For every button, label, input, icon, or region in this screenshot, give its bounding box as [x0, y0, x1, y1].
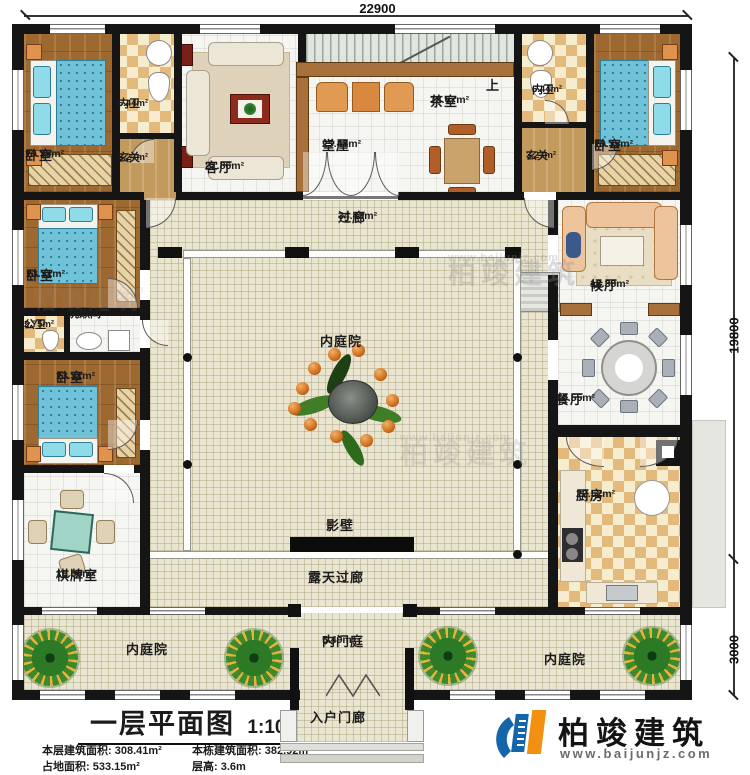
brand-logo: 柏竣建筑 www.baijunjz.com	[492, 702, 742, 770]
courtyard-strip-top	[183, 250, 521, 258]
bed	[600, 60, 650, 146]
tea-chair	[448, 124, 476, 135]
window	[12, 70, 24, 130]
waiting-post-r	[648, 303, 680, 316]
wall-toprow-d	[556, 192, 680, 200]
fruit	[304, 418, 317, 431]
window	[680, 625, 692, 680]
porch-step	[280, 743, 424, 751]
armchair	[384, 82, 414, 112]
window	[680, 70, 692, 130]
page-title: 一层平面图	[90, 709, 235, 739]
chess-chair	[60, 490, 84, 509]
kitchen-counter-left	[560, 470, 586, 582]
wall-bath-tl-btm	[120, 133, 174, 139]
dim-bottom-right-value: 3000	[727, 626, 742, 674]
stat-3: 占地面积: 533.15m²	[42, 758, 140, 774]
dim-right-value: 19800	[727, 308, 742, 364]
window	[12, 230, 24, 285]
coffee-table	[600, 236, 644, 266]
porch-pier-r	[407, 710, 424, 742]
wall-living-hall-top	[298, 34, 306, 62]
open-corridor-edge	[146, 551, 555, 559]
stove-burner	[566, 548, 578, 560]
brand-logo-icon	[492, 704, 554, 766]
bed	[56, 60, 106, 146]
fruit	[382, 420, 395, 433]
sofa	[586, 202, 662, 228]
porch-pier-l	[280, 710, 297, 742]
pillow	[653, 103, 671, 135]
column-stub	[285, 247, 309, 258]
window	[190, 690, 235, 700]
window	[12, 625, 24, 680]
nightstand	[662, 44, 678, 60]
sofa	[208, 42, 284, 66]
person-figure	[566, 232, 581, 258]
tree-icon	[22, 630, 78, 686]
wall-bed-tl-r	[112, 34, 120, 192]
outside-walk	[692, 420, 726, 608]
sink-icon	[527, 40, 553, 66]
column-dot	[513, 460, 522, 469]
tea-chair	[483, 146, 495, 174]
dining-table-center	[615, 354, 643, 382]
fruit	[308, 362, 321, 375]
stove-burner	[566, 533, 578, 545]
gate-stub-r	[405, 648, 414, 710]
wall-toprow-a	[24, 192, 144, 200]
tea-table	[444, 138, 480, 184]
wall-leftcol-v4	[140, 450, 150, 607]
window	[115, 690, 160, 700]
tree-icon	[420, 628, 476, 684]
window	[40, 690, 85, 700]
dining-chair	[582, 359, 595, 377]
window	[600, 24, 660, 34]
column-stub	[158, 247, 182, 258]
hall-beam	[296, 62, 514, 77]
wall-wc-divider	[64, 316, 70, 352]
window	[12, 385, 24, 440]
column-dot	[183, 353, 192, 362]
mahjong-table	[50, 510, 94, 554]
fruit	[296, 382, 309, 395]
window	[440, 607, 495, 615]
fruit	[360, 434, 373, 447]
column-dot	[513, 353, 522, 362]
floor-plan: 上 卧室19.35m² 内卫6.44m² 玄关3.27m² 客厅21.86m² …	[0, 0, 750, 775]
nightstand	[662, 150, 678, 166]
kitchen-sink-icon	[606, 585, 638, 601]
window	[395, 24, 495, 34]
wall-chess-top-b	[134, 465, 140, 473]
bed	[38, 386, 98, 442]
wall-rightcol-v2	[548, 275, 558, 340]
side-table	[352, 82, 380, 112]
wall-toprow-c	[398, 192, 524, 200]
armchair	[316, 82, 348, 112]
window	[150, 607, 205, 615]
fruit	[386, 394, 399, 407]
pillow	[69, 442, 93, 457]
dim-top-value: 22900	[330, 1, 425, 16]
wall-rightcol-v3	[548, 380, 558, 607]
wall-outer-top	[12, 24, 692, 34]
column-stub	[395, 247, 419, 258]
window	[200, 24, 260, 34]
wall-dining-kitchen	[558, 425, 680, 437]
window	[42, 607, 97, 615]
wash-sink-icon	[76, 332, 102, 350]
pillow	[653, 66, 671, 98]
stat-1: 本层建筑面积: 308.41m²	[42, 742, 162, 758]
porch-step	[280, 754, 424, 763]
window	[50, 24, 105, 34]
sofa	[654, 206, 678, 280]
nightstand	[26, 204, 41, 220]
hall-door-sill	[303, 196, 398, 199]
column-dot	[513, 550, 522, 559]
fruit	[288, 402, 301, 415]
dining-chair	[620, 322, 638, 335]
wall-tea-bath-tr	[514, 26, 522, 200]
washing-machine-icon	[108, 330, 130, 351]
window	[585, 607, 640, 615]
fruit	[330, 430, 343, 443]
pillow	[42, 442, 66, 457]
wall-bath-tl-r	[174, 34, 182, 192]
pillow	[69, 207, 93, 222]
plant-pot	[328, 380, 378, 424]
window	[525, 690, 570, 700]
pillow	[33, 103, 51, 135]
chess-chair	[96, 520, 115, 544]
window	[450, 690, 495, 700]
brand-website: www.baijunjz.com	[560, 746, 712, 761]
window	[600, 690, 645, 700]
window	[680, 225, 692, 285]
tree-icon	[226, 630, 282, 686]
title-row: 一层平面图 1:100	[78, 702, 308, 745]
dining-chair	[620, 400, 638, 413]
pillow	[33, 66, 51, 98]
gate-block-l	[288, 604, 301, 617]
column-stub	[505, 247, 521, 258]
wall-toprow-b	[176, 192, 303, 200]
courtyard-strip-left	[183, 258, 191, 551]
window	[680, 335, 692, 395]
wall-wc-l3	[24, 352, 140, 360]
wall-leftcol-v3	[140, 348, 150, 420]
dining-chair	[662, 359, 675, 377]
wall-leftcol-v2	[140, 300, 150, 320]
pillow	[42, 207, 66, 222]
window	[12, 500, 24, 560]
tree-icon	[624, 628, 680, 684]
wall-chess-top-a	[24, 465, 104, 473]
table-plant-icon	[244, 103, 256, 115]
gate-block-r	[403, 604, 417, 617]
fruit	[374, 368, 387, 381]
stat-4: 层高: 3.6m	[192, 758, 246, 774]
gate-stub-l	[290, 648, 299, 710]
nightstand	[26, 446, 41, 462]
tea-chair	[429, 146, 441, 174]
courtyard-strip-right	[513, 258, 521, 551]
waiting-post-l	[560, 303, 592, 316]
nightstand	[26, 44, 42, 60]
kitchen-flue-inner	[662, 446, 674, 458]
nightstand	[98, 204, 113, 220]
sofa	[186, 70, 210, 156]
door-arc-washroom	[142, 320, 168, 346]
kitchen-table	[634, 480, 670, 516]
column-dot	[183, 460, 192, 469]
chess-chair	[28, 520, 47, 544]
entry-double-door	[326, 674, 380, 697]
fruit	[328, 348, 341, 361]
sink-icon	[146, 40, 172, 66]
screen-wall-bar	[290, 537, 414, 552]
